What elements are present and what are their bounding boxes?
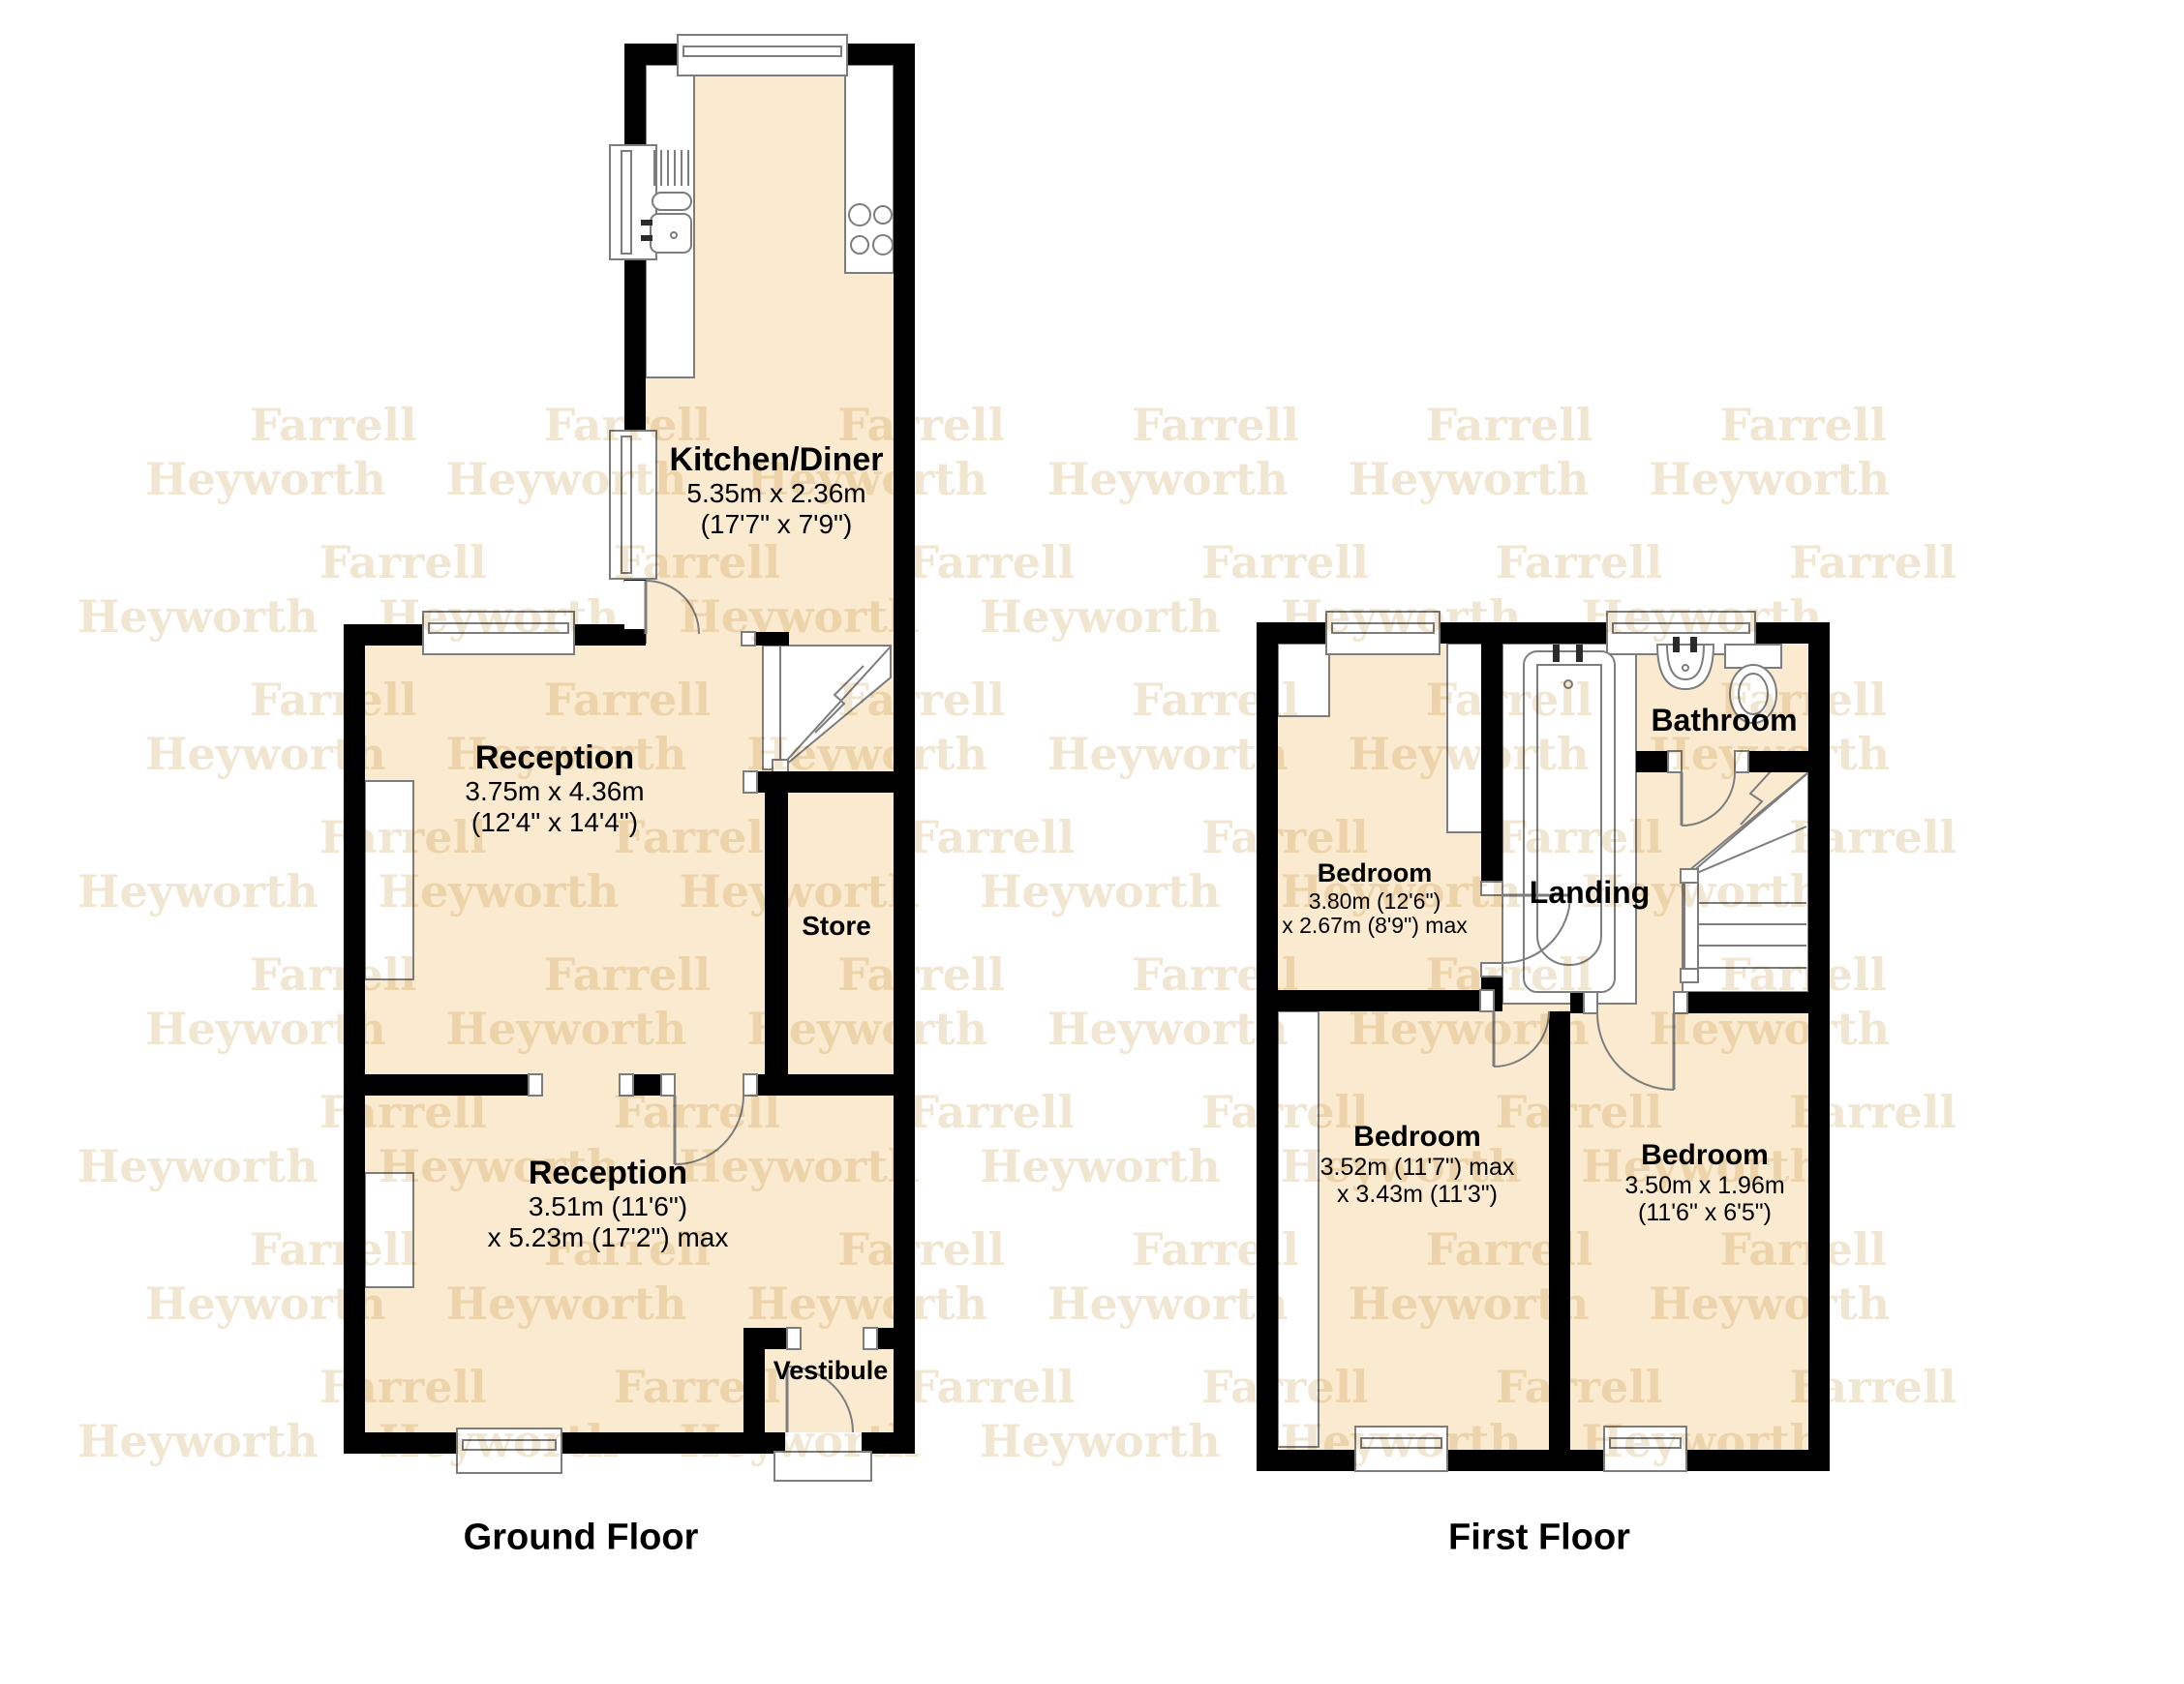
room-name: Reception <box>488 1155 729 1191</box>
window <box>610 145 656 259</box>
floorplan-drawing <box>0 0 2184 1684</box>
ground-floor-title: Ground Floor <box>464 1518 699 1559</box>
window <box>610 431 656 579</box>
window <box>1604 1427 1686 1471</box>
room-name: Kitchen/Diner <box>669 441 883 478</box>
floorplan-canvas: Farrell Farrell Farrell Farrell Farrell … <box>0 0 2184 1684</box>
room-name: Store <box>802 911 871 942</box>
bathroom-sink <box>1657 637 1714 689</box>
room-name: Reception <box>465 739 644 776</box>
window <box>457 1428 561 1473</box>
room-dims: 3.80m (12'6") <box>1282 887 1468 913</box>
room-dims: x 5.23m (17'2") max <box>488 1222 729 1253</box>
room-dims: (12'4" x 14'4") <box>465 807 644 838</box>
room-dims: x 2.67m (8'9") max <box>1282 913 1468 938</box>
room-name: Bathroom <box>1651 703 1797 737</box>
room-label-landing: Landing <box>1530 875 1650 910</box>
bedroom-recess <box>1278 1011 1319 1447</box>
room-name: Bedroom <box>1282 858 1468 888</box>
room-dims: 5.35m x 2.36m <box>669 479 883 510</box>
room-dims: x 3.43m (11'3") <box>1320 1181 1515 1208</box>
first-floor-plan <box>1257 612 1830 1471</box>
room-dims: 3.52m (11'7") max <box>1320 1154 1515 1181</box>
room-dims: 3.50m x 1.96m <box>1624 1172 1784 1199</box>
room-dims: 3.75m x 4.36m <box>465 777 644 808</box>
room-label-reception-1: Reception 3.75m x 4.36m (12'4" x 14'4") <box>465 739 644 838</box>
bedroom-recess <box>1278 644 1329 716</box>
room-label-store: Store <box>802 911 871 942</box>
room-label-bedroom-back: Bedroom 3.50m x 1.96m (11'6" x 6'5") <box>1624 1139 1784 1226</box>
bath-tub <box>1524 645 1615 992</box>
room-label-kitchen-diner: Kitchen/Diner 5.35m x 2.36m (17'7" x 7'9… <box>669 441 883 540</box>
room-dims: (11'6" x 6'5") <box>1624 1199 1784 1226</box>
room-label-reception-2: Reception 3.51m (11'6") x 5.23m (17'2") … <box>488 1155 729 1253</box>
window <box>1326 612 1440 654</box>
window <box>1355 1427 1447 1471</box>
room-label-bedroom-middle: Bedroom 3.52m (11'7") max x 3.43m (11'3"… <box>1320 1121 1515 1208</box>
room-name: Landing <box>1530 875 1650 910</box>
room-dims: 3.51m (11'6") <box>488 1192 729 1223</box>
window <box>678 35 847 75</box>
room-name: Bedroom <box>1320 1121 1515 1154</box>
kitchen-door-opening <box>624 581 646 629</box>
room-label-vestibule: Vestibule <box>773 1356 889 1386</box>
room-name: Vestibule <box>773 1356 889 1386</box>
window <box>423 612 574 654</box>
room-dims: (17'7" x 7'9") <box>669 509 883 540</box>
room-label-bedroom-front: Bedroom 3.80m (12'6") x 2.67m (8'9") max <box>1282 858 1468 938</box>
room-name: Bedroom <box>1624 1139 1784 1172</box>
first-floor-title: First Floor <box>1448 1518 1630 1559</box>
room-label-bathroom: Bathroom <box>1651 703 1797 737</box>
